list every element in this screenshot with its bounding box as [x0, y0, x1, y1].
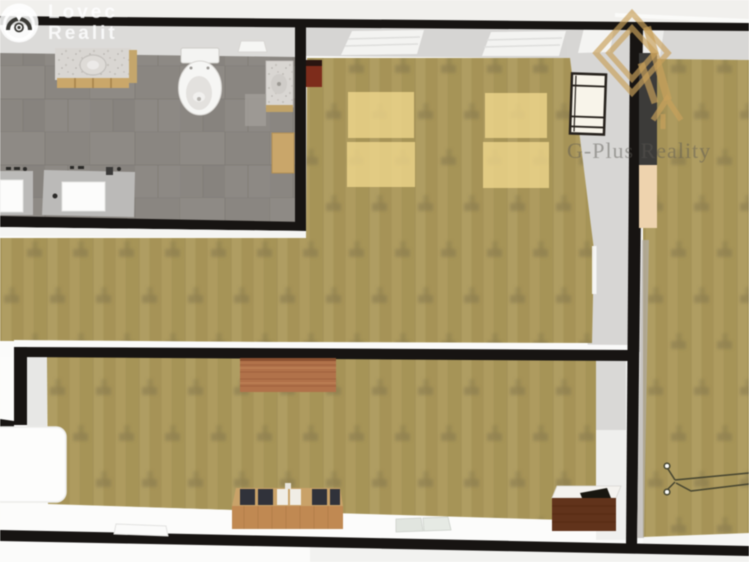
svg-text:Realit: Realit [48, 23, 118, 44]
svg-text:G-Plus Reality: G-Plus Reality [567, 138, 711, 163]
svg-text:Lovec: Lovec [48, 2, 118, 23]
